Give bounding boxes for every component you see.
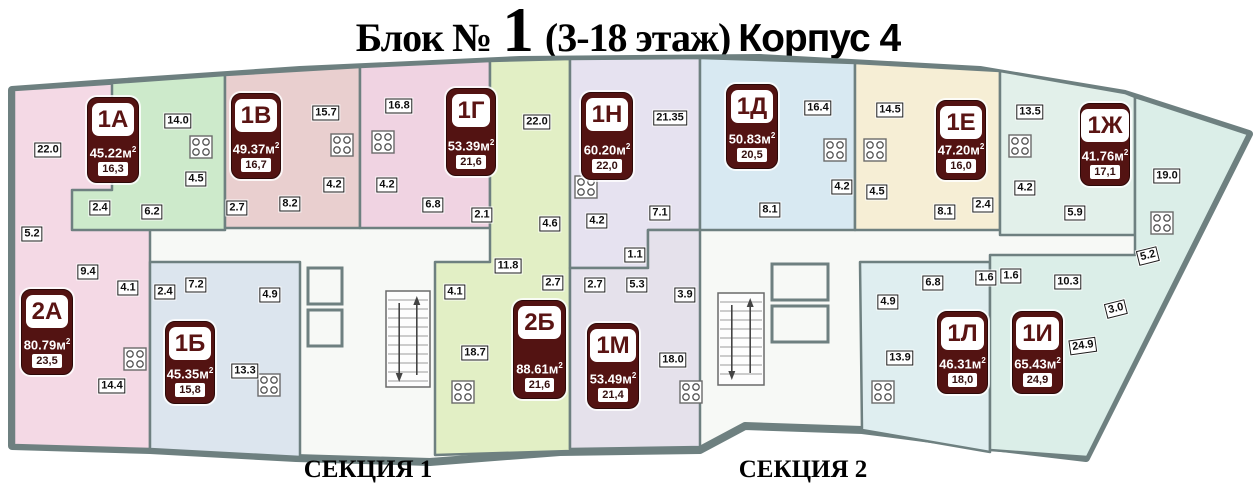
apartment-id: 1Л bbox=[941, 317, 983, 350]
room-area-label: 3.9 bbox=[674, 288, 695, 303]
room-area-label: 1.1 bbox=[624, 248, 645, 263]
room-area-label: 1.6 bbox=[975, 271, 996, 286]
stair-flight bbox=[718, 293, 764, 385]
apartment-badge-1М: 1М53.49м221,4 bbox=[587, 323, 639, 409]
room-area-label: 2.7 bbox=[226, 201, 247, 216]
room-area-label: 13.5 bbox=[1016, 105, 1043, 120]
staircase bbox=[386, 291, 430, 387]
apartment-living-area: 21,4 bbox=[598, 388, 627, 402]
stove-icon bbox=[680, 381, 702, 403]
room-area-label: 22.0 bbox=[523, 115, 550, 130]
stair-flight bbox=[386, 291, 430, 387]
staircase bbox=[718, 293, 764, 385]
room-area-label: 14.0 bbox=[164, 114, 191, 129]
stove-icon bbox=[864, 139, 886, 161]
apartment-living-area: 21,6 bbox=[525, 378, 554, 392]
apartment-living-area: 17,1 bbox=[1090, 165, 1119, 179]
room-area-label: 4.2 bbox=[323, 178, 344, 193]
room-area-label: 14.5 bbox=[876, 103, 903, 118]
apartment-total-area: 53.39м2 bbox=[448, 138, 495, 153]
room-area-label: 7.1 bbox=[649, 206, 670, 221]
apartment-badge-2Б: 2Б88.61м221,6 bbox=[513, 300, 566, 399]
room-area-label: 5.3 bbox=[626, 278, 647, 293]
room-area-label: 4.5 bbox=[866, 185, 887, 200]
room-area-label: 2.1 bbox=[471, 208, 492, 223]
room-area-label: 21.35 bbox=[653, 111, 687, 126]
apartment-badge-1А: 1А45.22м216,3 bbox=[87, 97, 139, 183]
apartment-living-area: 23,5 bbox=[32, 354, 61, 368]
stove-icon bbox=[824, 139, 846, 161]
room-area-label: 14.4 bbox=[98, 379, 125, 394]
stove-icon bbox=[331, 134, 353, 156]
room-area-label: 4.1 bbox=[444, 285, 465, 300]
apartment-living-area: 22,0 bbox=[592, 159, 621, 173]
apartment-living-area: 24,9 bbox=[1023, 373, 1052, 387]
apartment-id: 1Ж bbox=[1081, 109, 1128, 142]
room-area-label: 4.2 bbox=[586, 214, 607, 229]
apartment-id: 1В bbox=[235, 99, 278, 132]
apartment-badge-1И: 1И65.43м224,9 bbox=[1012, 311, 1063, 394]
apartment-id: 2Б bbox=[518, 306, 561, 339]
apartment-badge-1Г: 1Г53.39м221,6 bbox=[446, 88, 496, 176]
apartment-total-area: 53.49м2 bbox=[590, 371, 637, 386]
room-area-label: 9.4 bbox=[77, 265, 98, 280]
room-area-label: 8.2 bbox=[279, 197, 300, 212]
elevator-shaft bbox=[772, 306, 828, 342]
room-area-label: 18.7 bbox=[461, 346, 488, 361]
stove-icon bbox=[124, 348, 146, 370]
room-area-label: 6.8 bbox=[922, 276, 943, 291]
room-area-label: 15.7 bbox=[312, 106, 339, 121]
apartment-total-area: 50.83м2 bbox=[729, 131, 776, 146]
apartment-total-area: 41.76м2 bbox=[1082, 148, 1129, 163]
apartment-total-area: 46.31м2 bbox=[939, 356, 986, 371]
apartment-living-area: 16,7 bbox=[241, 158, 270, 172]
room-area-label: 8.1 bbox=[759, 203, 780, 218]
room-area-label: 4.5 bbox=[185, 172, 206, 187]
section-2-label: СЕКЦИЯ 2 bbox=[739, 456, 868, 484]
room-area-label: 4.1 bbox=[117, 281, 138, 296]
apartment-id: 1И bbox=[1016, 317, 1059, 350]
room-area-label: 4.2 bbox=[376, 178, 397, 193]
apartment-badge-1Б: 1Б45.35м215,8 bbox=[165, 321, 215, 404]
room-area-label: 18.0 bbox=[659, 353, 686, 368]
apartment-badge-1Д: 1Д50.83м220,5 bbox=[726, 84, 778, 169]
apartment-badge-1В: 1В49.37м216,7 bbox=[231, 93, 281, 179]
apartment-living-area: 18,0 bbox=[948, 373, 977, 387]
apartment-id: 1Н bbox=[586, 98, 629, 131]
room-area-label: 2.4 bbox=[972, 198, 993, 213]
apartment-id: 2А bbox=[26, 295, 69, 328]
apartment-living-area: 15,8 bbox=[175, 383, 204, 397]
room-area-label: 5.9 bbox=[1064, 206, 1085, 221]
stove-icon bbox=[258, 374, 280, 396]
apartment-total-area: 60.20м2 bbox=[584, 142, 631, 157]
room-area-label: 2.4 bbox=[89, 201, 110, 216]
room-area-label: 4.2 bbox=[1014, 181, 1035, 196]
apartment-total-area: 88.61м2 bbox=[516, 361, 563, 376]
stove-icon bbox=[190, 136, 212, 158]
apartment-living-area: 20,5 bbox=[737, 148, 766, 162]
room-area-label: 8.1 bbox=[934, 205, 955, 220]
room-area-label: 22.0 bbox=[34, 143, 61, 158]
room-area-label: 13.9 bbox=[886, 351, 913, 366]
apartment-total-area: 80.79м2 bbox=[24, 337, 71, 352]
room-area-label: 16.4 bbox=[804, 101, 831, 116]
apartment-total-area: 65.43м2 bbox=[1014, 356, 1061, 371]
apartment-living-area: 16,0 bbox=[946, 159, 975, 173]
room-area-label: 6.8 bbox=[422, 198, 443, 213]
stove-icon bbox=[872, 381, 894, 403]
room-area-label: 11.8 bbox=[495, 259, 522, 274]
room-area-label: 2.4 bbox=[154, 285, 175, 300]
room-area-label: 16.8 bbox=[385, 99, 412, 114]
room-area-label: 5.2 bbox=[21, 227, 42, 242]
elevator-shaft bbox=[308, 268, 342, 304]
apartment-total-area: 45.22м2 bbox=[90, 145, 137, 160]
apartment-living-area: 21,6 bbox=[456, 155, 485, 169]
room-area-label: 1.6 bbox=[1000, 269, 1021, 284]
apartment-badge-1Е: 1Е47.20м216,0 bbox=[936, 100, 986, 180]
room-area-label: 13.3 bbox=[231, 364, 258, 379]
apartment-badge-2А: 2А80.79м223,5 bbox=[21, 289, 73, 375]
stove-icon bbox=[452, 381, 474, 403]
room-area-label: 4.9 bbox=[259, 288, 280, 303]
stove-icon bbox=[372, 131, 394, 153]
room-area-label: 6.2 bbox=[141, 205, 162, 220]
apartment-total-area: 45.35м2 bbox=[167, 366, 214, 381]
apartment-living-area: 16,3 bbox=[98, 162, 127, 176]
floor-plan-drawing bbox=[0, 0, 1256, 487]
apartment-id: 1Б bbox=[169, 327, 212, 360]
room-area-label: 7.2 bbox=[185, 278, 206, 293]
apartment-id: 1Е bbox=[940, 106, 981, 139]
room-area-label: 19.0 bbox=[1153, 169, 1180, 184]
room-area-label: 4.2 bbox=[831, 180, 852, 195]
apartment-badge-1Ж: 1Ж41.76м217,1 bbox=[1080, 103, 1130, 186]
apartment-badge-1Н: 1Н60.20м222,0 bbox=[581, 92, 633, 180]
room-area-label: 10.3 bbox=[1054, 275, 1081, 290]
apartment-badge-1Л: 1Л46.31м218,0 bbox=[937, 311, 988, 394]
elevator-shaft bbox=[772, 264, 828, 300]
room-area-label: 2.7 bbox=[542, 276, 563, 291]
apartment-total-area: 47.20м2 bbox=[938, 142, 985, 157]
apartment-id: 1Г bbox=[452, 94, 491, 127]
stove-icon bbox=[1009, 135, 1031, 157]
apartment-id: 1М bbox=[590, 329, 635, 362]
stove-icon bbox=[1151, 212, 1173, 234]
apartment-id: 1А bbox=[92, 103, 135, 136]
room-area-label: 4.9 bbox=[877, 295, 898, 310]
section-1-label: СЕКЦИЯ 1 bbox=[304, 456, 433, 484]
elevator-shaft bbox=[308, 310, 342, 346]
apartment-id: 1Д bbox=[731, 90, 773, 123]
room-area-label: 2.7 bbox=[584, 278, 605, 293]
room-area-label: 4.6 bbox=[539, 217, 560, 232]
floor-plan-page: Блок № 1 (3-18 этаж)Корпус 4 22.014.04.5… bbox=[0, 0, 1256, 487]
apartment-total-area: 49.37м2 bbox=[233, 141, 280, 156]
